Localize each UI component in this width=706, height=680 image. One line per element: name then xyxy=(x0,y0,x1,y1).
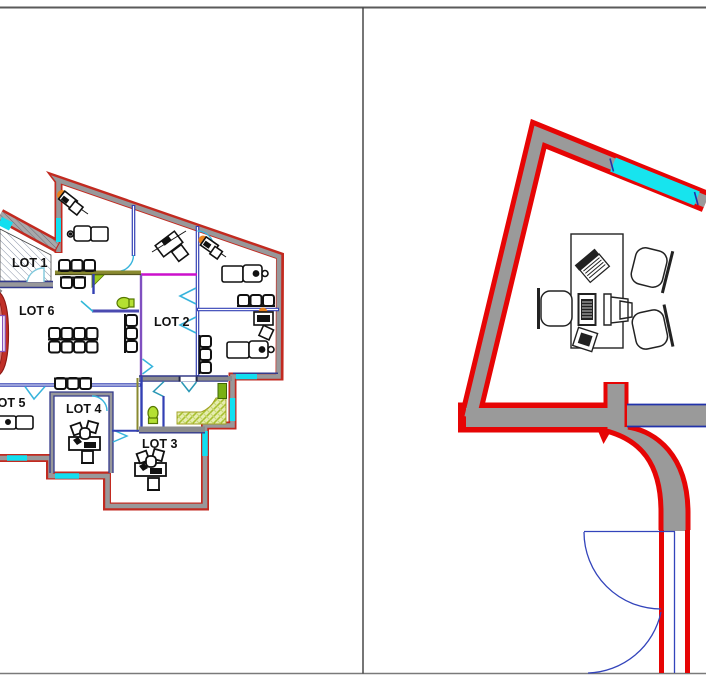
svg-text:LOT 3: LOT 3 xyxy=(142,437,177,451)
svg-text:LOT 5: LOT 5 xyxy=(0,396,25,410)
svg-text:LOT 1: LOT 1 xyxy=(12,256,47,270)
svg-text:LOT 6: LOT 6 xyxy=(19,304,54,318)
svg-text:LOT 4: LOT 4 xyxy=(66,402,101,416)
svg-text:LOT 2: LOT 2 xyxy=(154,315,189,329)
